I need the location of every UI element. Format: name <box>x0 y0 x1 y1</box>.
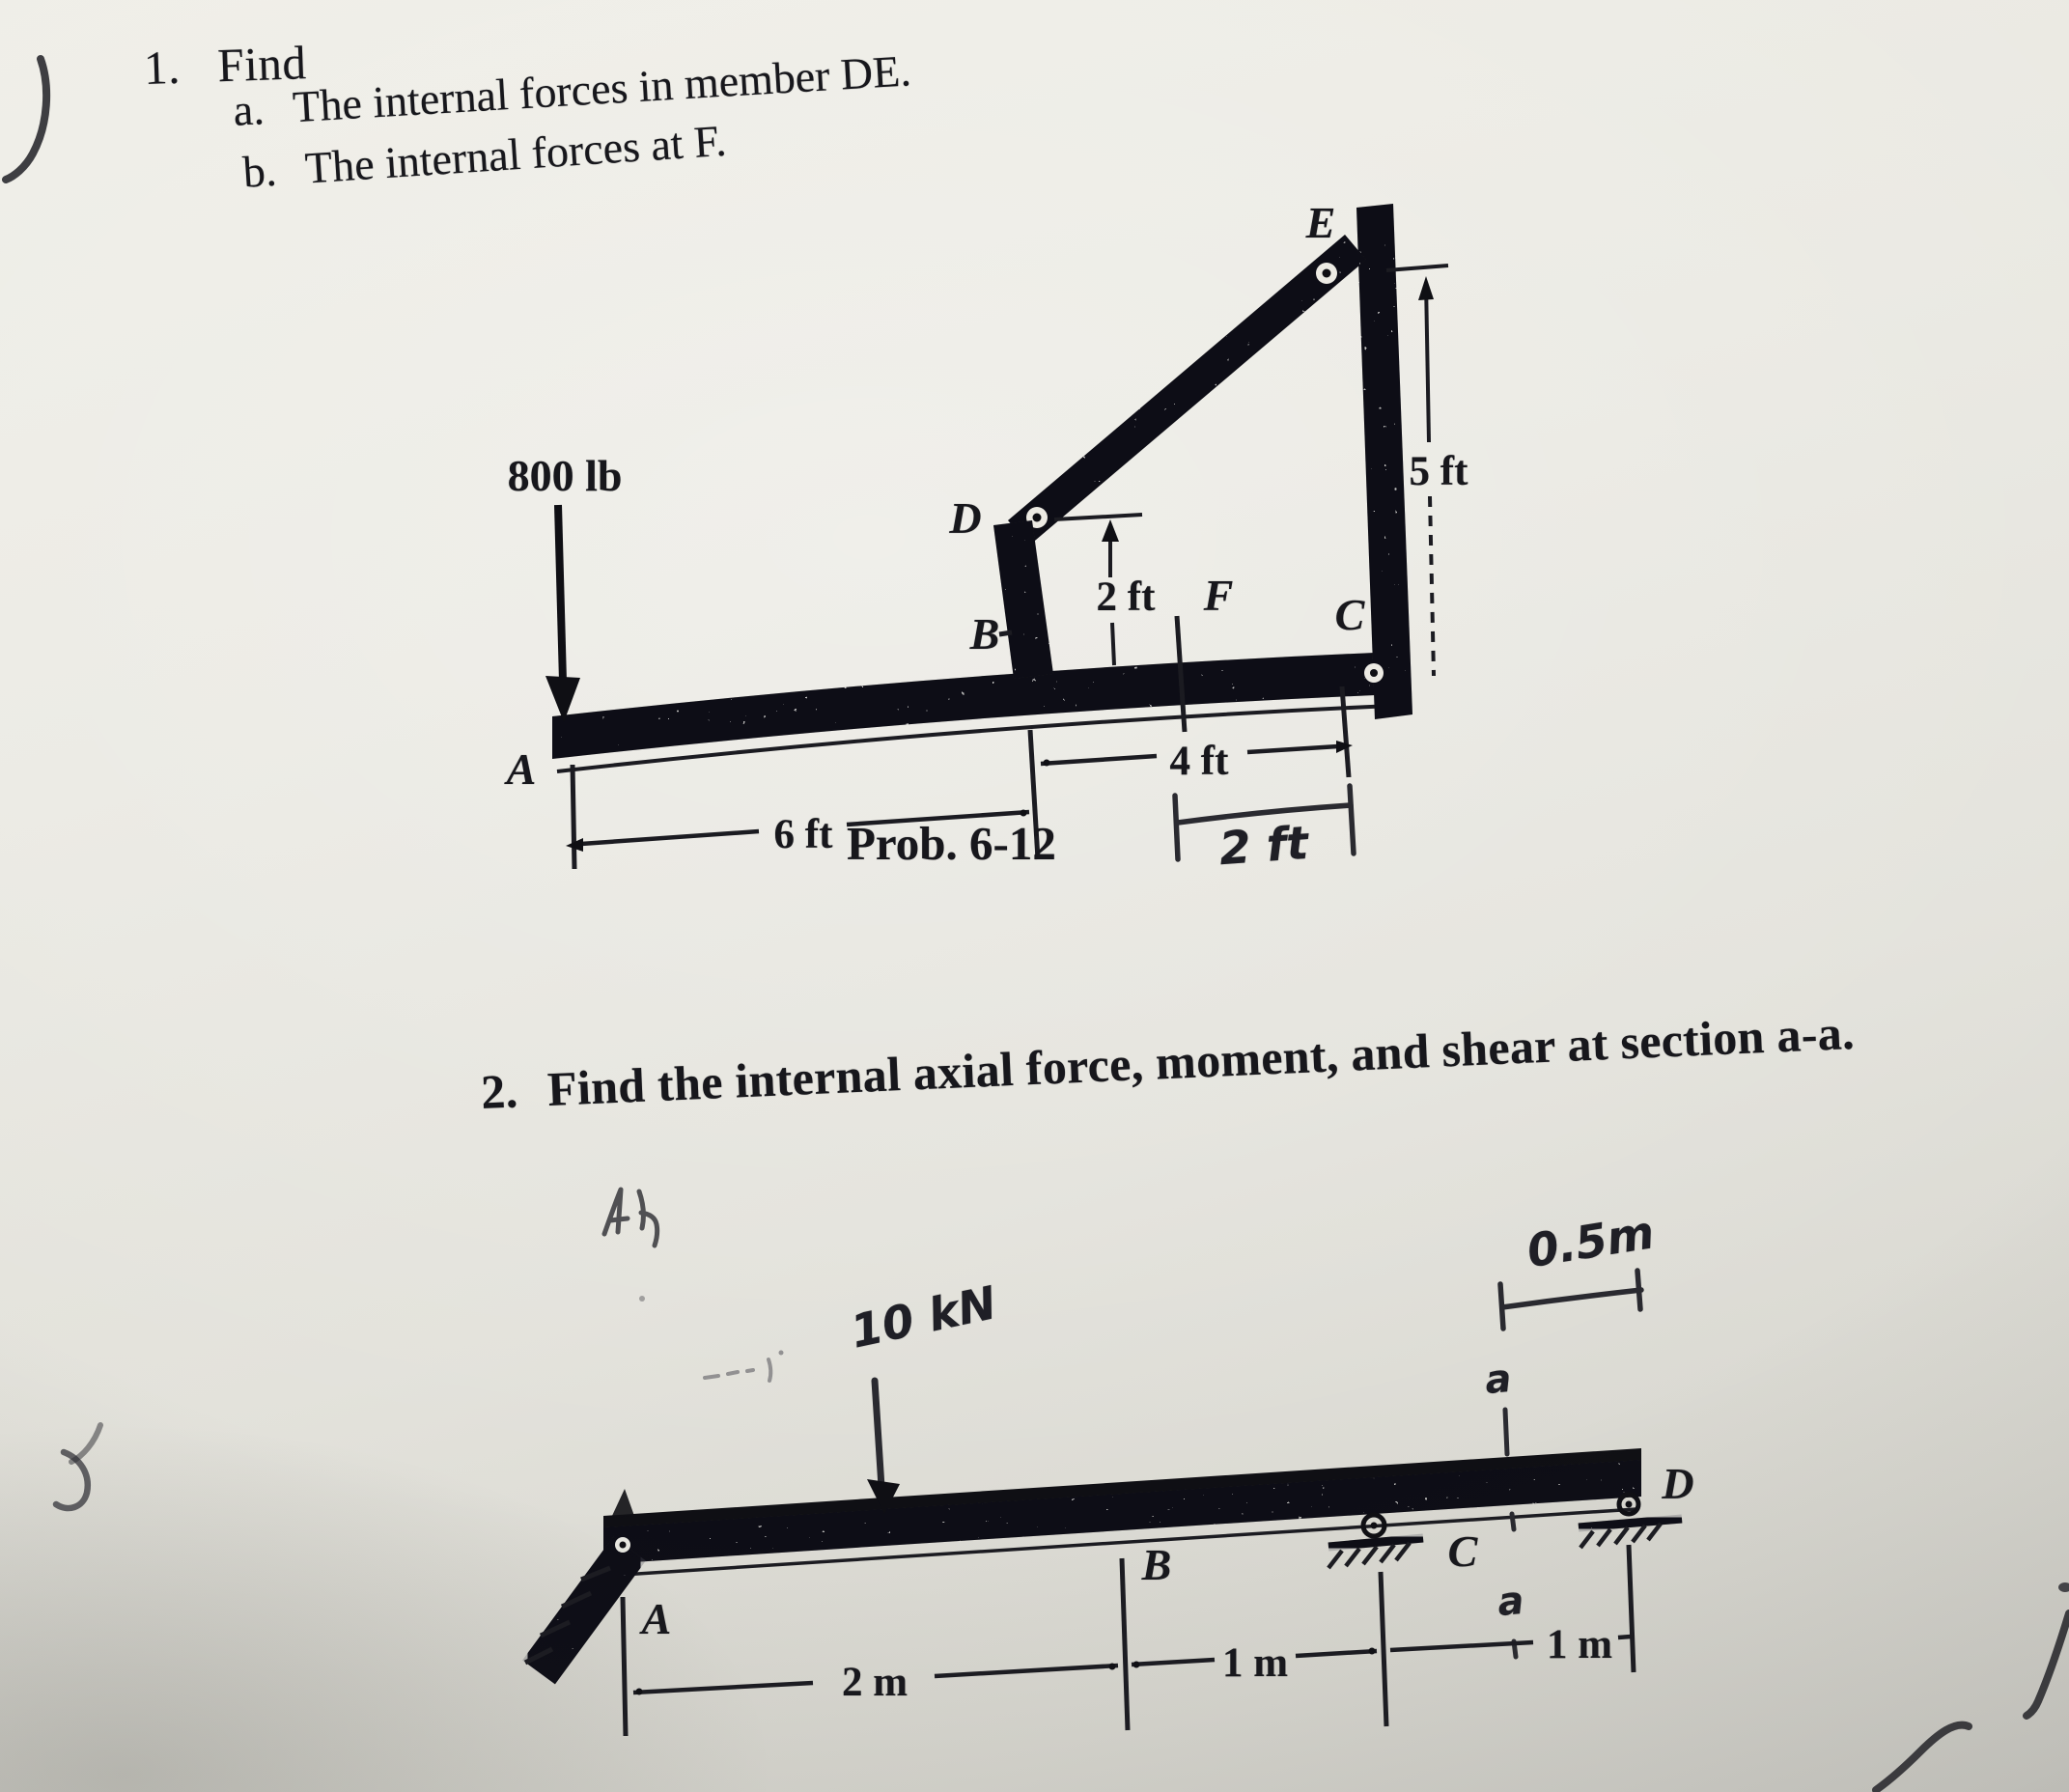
beam-member-AC <box>552 652 1398 771</box>
node-label-C: C <box>1335 590 1366 639</box>
pen-mark-left-middle <box>39 1410 145 1535</box>
dim-label-6ft: 6 ft <box>774 812 834 857</box>
force-arrow-10kN <box>867 1381 900 1514</box>
node-label-E: E <box>1305 198 1336 247</box>
node-label-A2: A <box>639 1594 672 1643</box>
photographed-worksheet: 1. Find a.The internal forces in member … <box>0 0 2069 1792</box>
node-label-B2: B <box>1141 1540 1172 1589</box>
node-label-D2: D <box>1661 1459 1693 1508</box>
dim-label-2ft-vertical: 2 ft <box>1097 574 1157 620</box>
diagram1-caption: Prob. 6-12 <box>847 817 1056 870</box>
dimension-half-m <box>1500 1271 1641 1329</box>
problem2-heading: 2. Find the internal axial force, moment… <box>480 1004 1856 1120</box>
dim-label-5ft: 5 ft <box>1410 449 1469 494</box>
force-arrow-800lb <box>545 505 580 722</box>
pen-scribble-marks <box>604 1190 784 1381</box>
beam-diagram-section-aa: A 10 kN C <box>338 1139 1786 1792</box>
frame-diagram-prob-6-12: 800 lb A B C D E F 2 ft 5 ft <box>367 135 1525 937</box>
diagonal-member-DE <box>1019 247 1356 533</box>
node-label-A: A <box>504 744 537 794</box>
dim-label-1m-cd: 1 m <box>1547 1622 1612 1667</box>
problem2-number: 2. <box>480 1063 519 1119</box>
pen-mark-bottom-right <box>1828 1502 2069 1792</box>
force-label-800lb: 800 lb <box>508 451 623 500</box>
node-label-C2: C <box>1448 1526 1479 1576</box>
force-label-10kN: 10 kN <box>847 1276 1001 1358</box>
extension-line-A <box>573 765 574 869</box>
node-label-B: B <box>969 609 1000 658</box>
item-a-label: a. <box>232 84 266 135</box>
extension-line-B2 <box>1122 1558 1128 1730</box>
section-label-a-top: a <box>1483 1357 1513 1403</box>
dim-label-4ft: 4 ft <box>1170 739 1230 784</box>
item-a-text: The internal forces in member DE. <box>292 45 912 131</box>
pin-joint-C-icon <box>1364 663 1384 683</box>
beam-member-AD <box>603 1448 1641 1576</box>
section-label-a-bottom: a <box>1496 1579 1525 1625</box>
item-b-label: b. <box>241 146 278 197</box>
problem1-item-a: a.The internal forces in member DE. <box>232 44 912 136</box>
problem2-text: Find the internal axial force, moment, a… <box>546 1005 1856 1116</box>
node-label-F: F <box>1203 571 1234 620</box>
extension-line-C <box>1342 686 1349 777</box>
vertical-member-BD <box>993 520 1053 679</box>
problem1-number: 1. <box>143 41 182 95</box>
pen-mark-top-left <box>0 53 58 188</box>
node-label-D: D <box>948 493 981 543</box>
pin-support-A <box>525 1489 634 1672</box>
wall-member <box>1356 204 1412 719</box>
dim-label-half-m: 0.5m <box>1524 1206 1658 1278</box>
dim-label-2m: 2 m <box>842 1660 908 1705</box>
dim-label-2ft-handwritten: 2 ft <box>1217 817 1311 876</box>
dim-label-1m-bc: 1 m <box>1222 1640 1288 1686</box>
